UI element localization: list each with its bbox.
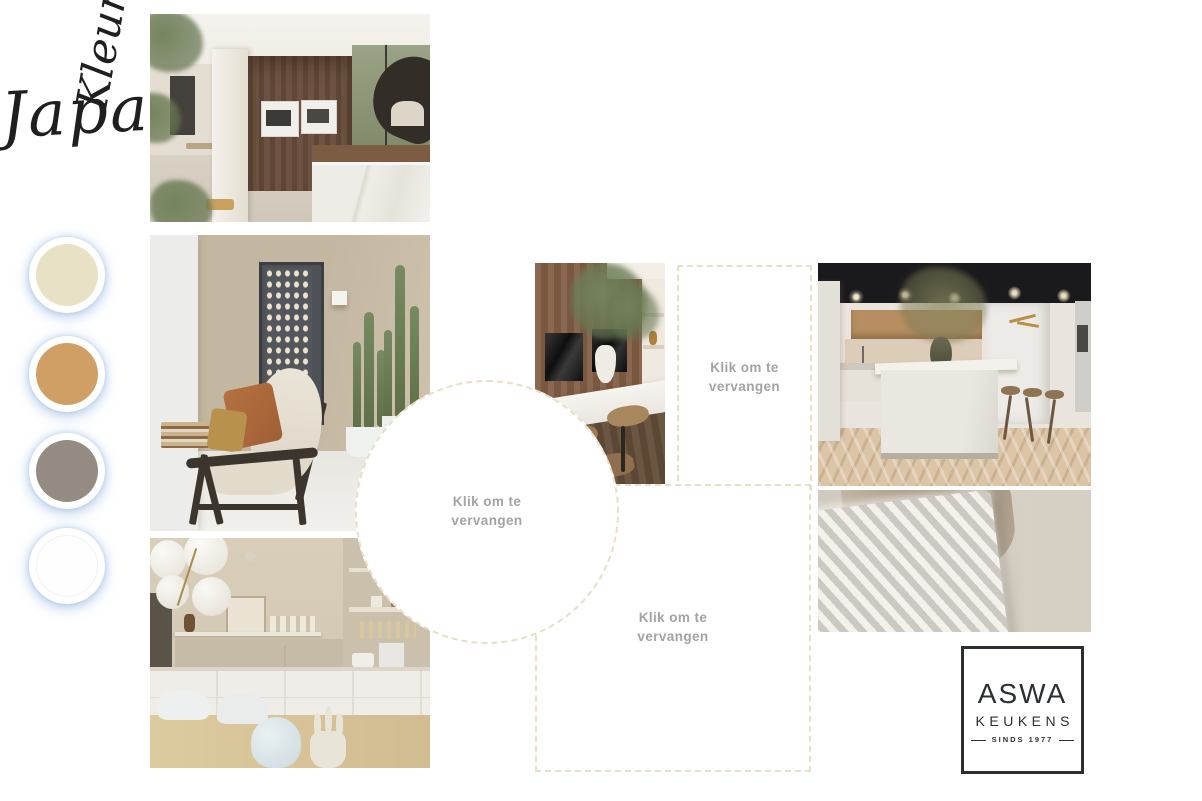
photo2-chair-stretcher: [198, 504, 304, 510]
photo4-eucalyptus-branches: [607, 286, 659, 340]
moodboard-canvas: Kleuren: [0, 0, 1202, 801]
photo4-stool-leg: [621, 426, 625, 471]
photo3-open-shelf: [175, 632, 321, 636]
photo2-cactus: [353, 342, 361, 431]
photo4-white-vase: [595, 345, 616, 384]
swatch-color-cream: [36, 244, 98, 306]
photo5-far-wall: [1075, 301, 1091, 413]
logo-tagline-text: SINDS 1977: [992, 736, 1054, 744]
color-swatch-camel[interactable]: [29, 336, 105, 412]
photo1-oven-right-glass: [307, 109, 329, 124]
photo2-mustard-pillow: [206, 407, 248, 453]
swatch-color-taupe: [36, 440, 98, 502]
photo5-faucet: [862, 346, 864, 364]
photo1-stair-steps: [391, 101, 425, 126]
photo3-coffee-machine: [378, 642, 405, 669]
photo3-white-jug: [251, 717, 301, 768]
photo5-stool-seat: [1045, 390, 1064, 399]
photo4-oven-left: [545, 333, 583, 381]
color-swatch-taupe[interactable]: [29, 433, 105, 509]
placeholder-label: Klik om te vervangen: [690, 359, 800, 397]
logo-brand-text: ASWA: [978, 680, 1067, 708]
photo1-white-column: [212, 49, 248, 222]
photo2-wall-sconce: [332, 291, 347, 304]
swatch-color-camel: [36, 343, 98, 405]
photo6-soft-throw: [1020, 490, 1091, 632]
photo3-shelf-decor: [184, 614, 195, 632]
photo5-stool-seat: [1001, 386, 1020, 395]
photo3-candelabra-prong: [314, 713, 321, 736]
color-swatch-white[interactable]: [29, 528, 105, 604]
placeholder-label: Klik om te vervangen: [608, 609, 738, 647]
photo3-candelabra-body: [310, 731, 346, 768]
placeholder-label: Klik om te vervangen: [422, 493, 552, 531]
photo3-dining-chair: [217, 694, 267, 724]
photo6-chevron-pillow: [818, 490, 1010, 632]
color-swatch-cream[interactable]: [29, 237, 105, 313]
photo2-side-table-decor: [161, 422, 209, 449]
photo-walnut-kitchen[interactable]: [150, 14, 430, 222]
logo-tagline-row: SINDS 1977: [971, 736, 1075, 744]
swatch-color-white: [36, 535, 98, 597]
photo2-cactus-tall: [384, 330, 392, 419]
photo2-cactus-tall: [395, 265, 405, 419]
photo5-island-front: [881, 370, 998, 459]
photo4-shelf: [643, 345, 664, 350]
photo3-wine-glasses: [360, 621, 416, 639]
photo5-left-pillar: [818, 281, 840, 442]
photo5-appliance: [1077, 325, 1088, 352]
photo-showroom-kitchen[interactable]: [818, 263, 1091, 486]
photo2-white-wall: [150, 235, 198, 531]
photo3-candelabra-prong: [325, 706, 332, 734]
photo-cushions-closeup[interactable]: [818, 490, 1091, 632]
photo3-shelf-frame: [226, 596, 266, 635]
logo-dash-left: [971, 740, 986, 741]
photo3-toaster: [352, 653, 374, 667]
placeholder-slot-small[interactable]: Klik om te vervangen: [677, 265, 812, 491]
photo3-alcove-cup: [371, 596, 382, 608]
aswa-keukens-logo: ASWA KEUKENS SINDS 1977: [961, 646, 1084, 774]
photo1-oven-left-glass: [266, 110, 291, 127]
photo3-shelf-ceramics: [270, 616, 315, 632]
photo3-candelabra-prong: [336, 713, 343, 736]
placeholder-slot-circle[interactable]: Klik om te vervangen: [355, 380, 619, 644]
photo5-island-plinth: [881, 453, 998, 460]
logo-sub-text: KEUKENS: [971, 714, 1074, 728]
photo5-stool-seat: [1023, 388, 1042, 397]
photo3-faucet: [284, 646, 286, 667]
logo-dash-right: [1059, 740, 1074, 741]
photo2-cactus: [364, 312, 374, 430]
photo1-marble-island: [312, 162, 430, 222]
photo3-backsplash: [175, 639, 343, 667]
photo3-dining-chair: [158, 690, 208, 720]
